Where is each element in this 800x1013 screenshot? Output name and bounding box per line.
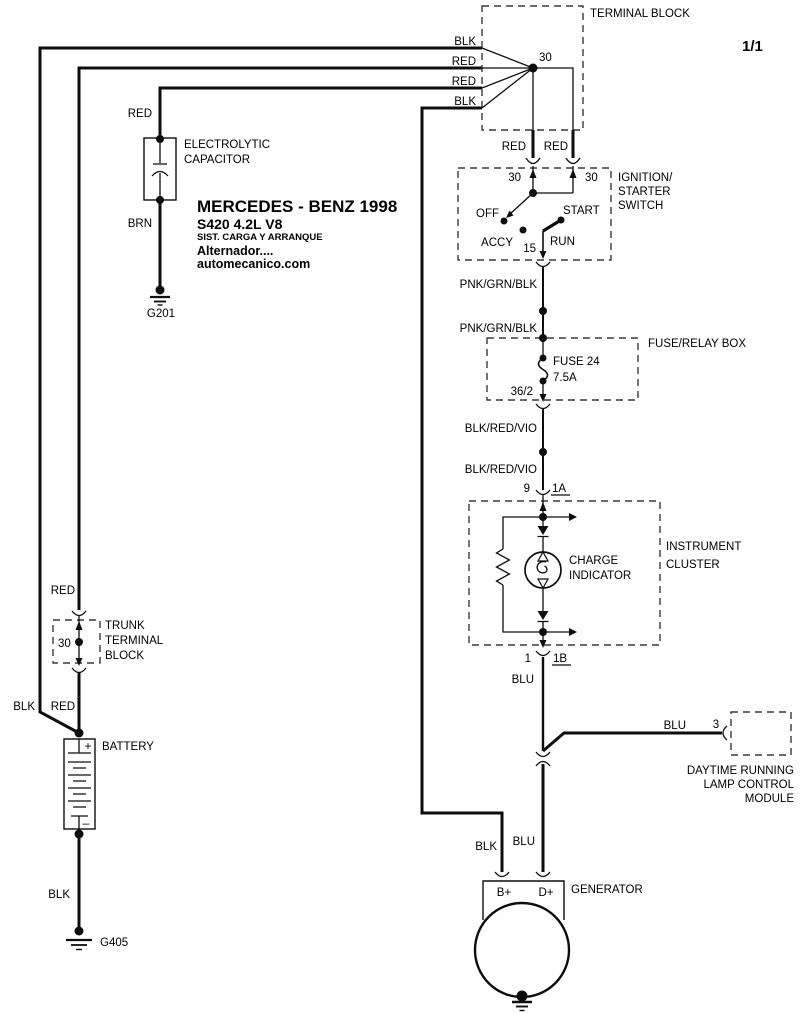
start-run-lever — [543, 220, 561, 231]
wire-label: BLK — [454, 96, 476, 108]
connector-arc — [536, 490, 550, 495]
arrow-up — [570, 169, 577, 178]
ignition-switch-label-3: SWITCH — [618, 200, 663, 212]
resistor-zigzag — [497, 549, 510, 585]
wire-label: BLK — [454, 36, 476, 48]
switch-lever — [510, 193, 533, 214]
wire-label: BLU — [513, 836, 535, 848]
wire-label: RED — [452, 56, 476, 68]
inline-connector — [536, 752, 550, 766]
off-contact-dot — [501, 218, 508, 225]
resistor-branch-top — [503, 517, 543, 549]
terminal-30-left: 30 — [508, 172, 521, 184]
wire-label: RED — [452, 76, 476, 88]
arrow-down — [540, 251, 547, 259]
indicator-arrow-up — [538, 552, 548, 561]
cluster-outline — [469, 501, 660, 645]
ground-label: G201 — [147, 308, 175, 320]
wire-label: BLU — [512, 674, 534, 686]
ignition-switch-label-2: STARTER — [618, 186, 671, 198]
splice-dot — [539, 448, 547, 456]
arrow-right — [569, 513, 577, 521]
connector-arc — [72, 668, 86, 673]
indicator-coil — [537, 562, 547, 573]
position-run: RUN — [550, 236, 575, 248]
generator-circle — [475, 903, 569, 997]
terminal-30: 30 — [58, 638, 71, 650]
diode-arrow-down — [538, 526, 549, 535]
wiring-diagram-page: 1/1 MERCEDES - BENZ 1998 S420 4.2L V8 SI… — [0, 0, 800, 1013]
resistor-branch-bottom — [503, 585, 543, 632]
ignition-starter-switch: RED RED IGNITION/ STARTER SWITCH 30 30 O… — [458, 130, 673, 267]
pin-1b: 1B — [553, 653, 567, 665]
pin-3: 3 — [713, 719, 719, 731]
ground-dot — [75, 927, 84, 936]
ground-dot — [517, 991, 528, 1002]
fuse-relay-box: FUSE/RELAY BOX FUSE 24 7.5A 36/2 — [487, 334, 746, 409]
title-line2: S420 4.2L V8 — [197, 216, 283, 232]
connector-arc — [536, 262, 550, 267]
wire-blk-2 — [422, 108, 502, 872]
charge-label-1: CHARGE — [569, 555, 619, 567]
position-start: START — [563, 205, 600, 217]
capacitor-label-2: CAPACITOR — [184, 154, 250, 166]
wire-label: BLK — [475, 841, 497, 853]
drl-branch — [543, 733, 722, 751]
trunk-label-2: TERMINAL — [105, 635, 164, 647]
charge-label-2: INDICATOR — [569, 570, 631, 582]
terminal-d-plus: D+ — [538, 887, 553, 899]
position-accy: ACCY — [481, 237, 513, 249]
wire-blk-red-vio: BLK/RED/VIO BLK/RED/VIO — [465, 408, 547, 490]
trunk-label-3: BLOCK — [105, 650, 144, 662]
cluster-label-1: INSTRUMENT — [666, 541, 741, 553]
battery-plus: + — [84, 739, 91, 753]
terminal-15: 15 — [523, 243, 536, 255]
arrow-down — [540, 640, 547, 648]
wire-label: PNK/GRN/BLK — [460, 279, 538, 291]
cluster-label-2: CLUSTER — [666, 559, 720, 571]
title-line4: Alternador.... — [197, 244, 273, 258]
title-line1: MERCEDES - BENZ 1998 — [197, 197, 397, 216]
wire-label: RED — [544, 141, 568, 153]
title-block: MERCEDES - BENZ 1998 S420 4.2L V8 SIST. … — [197, 197, 397, 271]
wire-label: PNK/GRN/BLK — [460, 323, 538, 335]
diode-arrow-down — [538, 611, 549, 620]
connector-arc — [72, 611, 86, 616]
ground-dot — [156, 286, 165, 295]
terminal-block-feeds — [533, 68, 573, 130]
wire-label: RED — [51, 701, 75, 713]
pin-1a: 1A — [552, 483, 566, 495]
splice-spokes — [482, 48, 533, 108]
arrow-up — [540, 502, 547, 511]
battery: + BATTERY – BLK — [48, 729, 154, 929]
charge-indicator: CHARGE INDICATOR — [525, 552, 631, 588]
generator-label: GENERATOR — [571, 884, 643, 896]
ground-label: G405 — [100, 937, 128, 949]
accy-contact-dot — [520, 227, 527, 234]
trunk-terminal-block: RED TRUNK TERMINAL BLOCK 30 BLK RED — [13, 585, 164, 733]
arrow-down — [76, 658, 83, 666]
wire-label: BLU — [664, 720, 686, 732]
drl-label-2: LAMP CONTROL — [703, 779, 794, 791]
connector-arc — [536, 651, 550, 656]
wire-pnk-grn-blk: PNK/GRN/BLK PNK/GRN/BLK — [460, 266, 547, 338]
arrow-right — [569, 628, 577, 636]
wire-label: RED — [502, 141, 526, 153]
title-line5: automecanico.com — [197, 257, 310, 271]
generator: BLK BLU B+ D+ GENERATOR — [475, 836, 643, 1011]
fuse-rating: 7.5A — [553, 372, 577, 384]
connector-arc — [723, 726, 727, 740]
wire-label: BLK — [48, 889, 70, 901]
instrument-cluster: 9 1A INSTRUMENT CLUSTER CHARGE INDICATOR — [469, 483, 741, 665]
fuse-terminal: 36/2 — [511, 386, 533, 398]
terminal-30-right: 30 — [585, 172, 598, 184]
terminal-block: TERMINAL BLOCK 30 — [482, 6, 690, 130]
indicator-arrow-down — [538, 579, 548, 588]
connector-arc — [526, 158, 540, 164]
arrow-down — [540, 394, 547, 402]
capacitor-top-node — [156, 135, 164, 143]
connector-arc — [566, 158, 580, 164]
wire-label: BLK — [13, 701, 35, 713]
splice-dot — [539, 307, 547, 315]
wire-label: RED — [51, 585, 75, 597]
arrow-up — [76, 621, 83, 630]
wire-red-2 — [160, 88, 482, 137]
fuse-name: FUSE 24 — [553, 356, 600, 368]
diode-bar — [538, 537, 549, 553]
ground-g201: G201 — [147, 286, 175, 321]
battery-label: BATTERY — [102, 741, 154, 753]
battery-minus: – — [83, 816, 90, 830]
connector-arc — [536, 404, 550, 409]
drl-label-3: MODULE — [745, 793, 795, 805]
daytime-running-lamp-module: 3 DAYTIME RUNNING LAMP CONTROL MODULE — [687, 712, 795, 805]
drl-module-outline — [731, 712, 791, 755]
terminal-30-label: 30 — [539, 52, 552, 64]
page-indicator: 1/1 — [742, 38, 763, 55]
wire-label: BLK/RED/VIO — [465, 464, 537, 476]
battery-top-node — [75, 729, 84, 738]
trunk-label-1: TRUNK — [105, 620, 145, 632]
fuse-box-label: FUSE/RELAY BOX — [648, 338, 746, 350]
drl-label-1: DAYTIME RUNNING — [687, 765, 794, 777]
terminal-b-plus: B+ — [497, 887, 512, 899]
pin-1: 1 — [525, 653, 531, 665]
battery-plates — [68, 762, 91, 807]
terminal-block-label: TERMINAL BLOCK — [590, 8, 690, 20]
ground-g405: G405 — [66, 927, 128, 950]
wire-label: BLK/RED/VIO — [465, 423, 537, 435]
capacitor-label-1: ELECTROLYTIC — [184, 139, 270, 151]
switch-feed-lines — [533, 166, 573, 193]
wire-label: BRN — [128, 218, 152, 230]
arrow-up — [530, 169, 537, 178]
ignition-switch-label-1: IGNITION/ — [618, 172, 673, 184]
connector-arcs — [495, 872, 550, 877]
title-line3: SIST. CARGA Y ARRANQUE — [197, 232, 323, 243]
wire-label: RED — [128, 108, 152, 120]
capacitor-plate-straight — [153, 143, 167, 164]
pin-9: 9 — [524, 483, 530, 495]
wiring-diagram: 1/1 MERCEDES - BENZ 1998 S420 4.2L V8 SI… — [0, 0, 800, 1013]
position-off: OFF — [476, 208, 499, 220]
